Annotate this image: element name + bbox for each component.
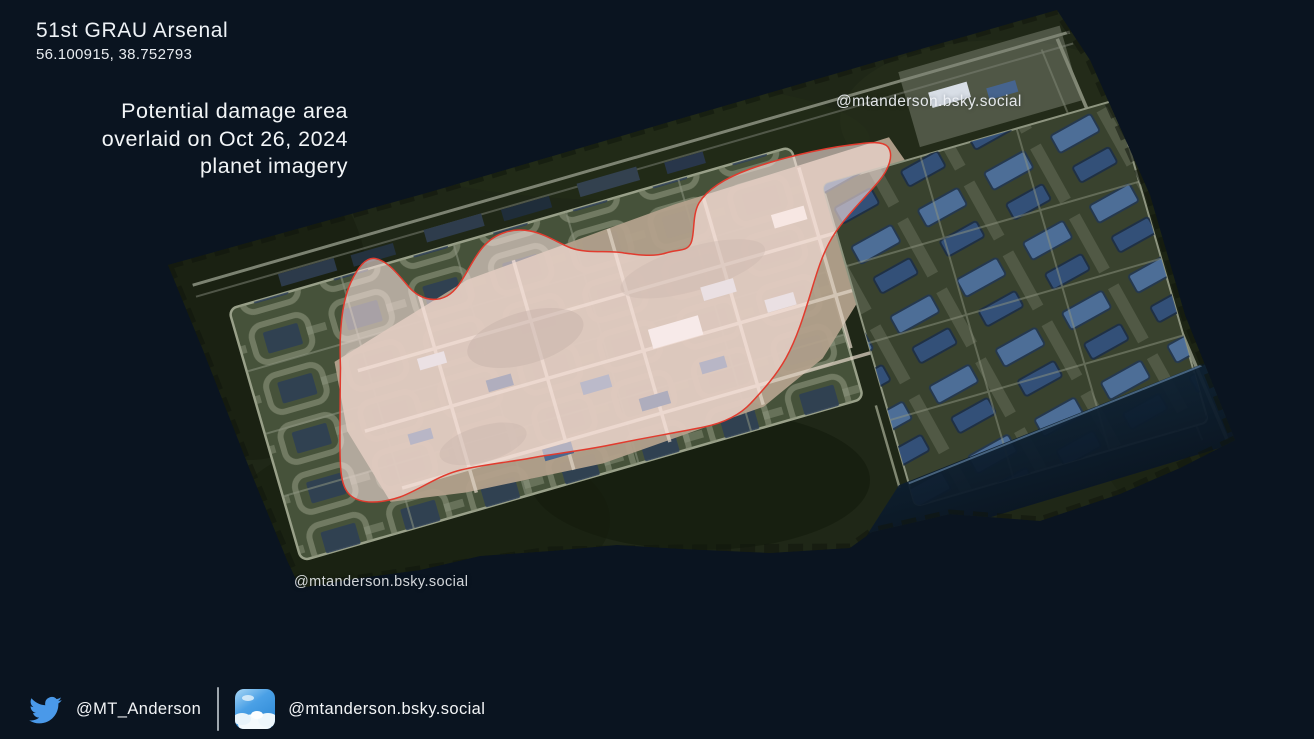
- divider: [217, 687, 219, 731]
- twitter-icon: [28, 694, 63, 724]
- caption-line-1: Potential damage area: [40, 98, 348, 126]
- bluesky-handle: @mtanderson.bsky.social: [288, 700, 485, 719]
- page-title: 51st GRAU Arsenal: [36, 19, 228, 43]
- caption-line-2: overlaid on Oct 26, 2024: [40, 126, 348, 154]
- infographic-canvas: { "header": { "title": "51st GRAU Arsena…: [0, 0, 1314, 739]
- bluesky-icon: [235, 689, 275, 729]
- attribution-bar: @MT_Anderson @mtanderson.bsky.social: [28, 686, 485, 732]
- coordinates-label: 56.100915, 38.752793: [36, 46, 192, 63]
- caption-line-3: planet imagery: [40, 153, 348, 181]
- watermark-bottom: @mtanderson.bsky.social: [294, 574, 468, 590]
- watermark-top: @mtanderson.bsky.social: [836, 93, 1022, 111]
- caption: Potential damage area overlaid on Oct 26…: [40, 98, 348, 181]
- twitter-handle: @MT_Anderson: [76, 700, 201, 719]
